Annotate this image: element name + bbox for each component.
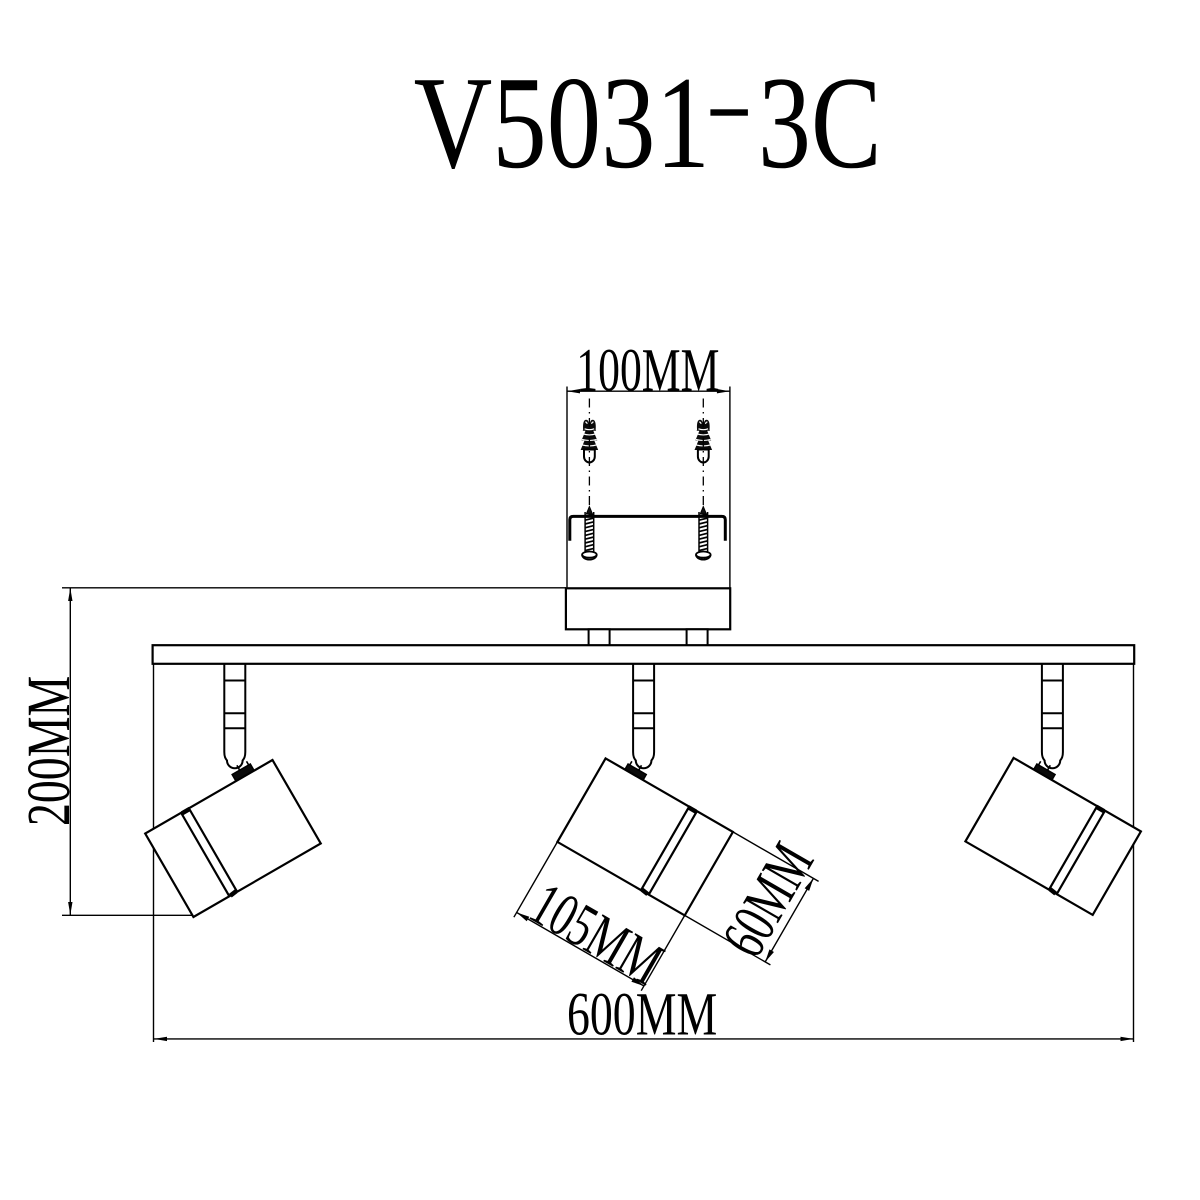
svg-text:3C: 3C <box>758 49 882 196</box>
svg-text:V5031: V5031 <box>414 50 710 196</box>
svg-text:200MM: 200MM <box>15 676 83 826</box>
svg-text:100MM: 100MM <box>576 335 719 404</box>
